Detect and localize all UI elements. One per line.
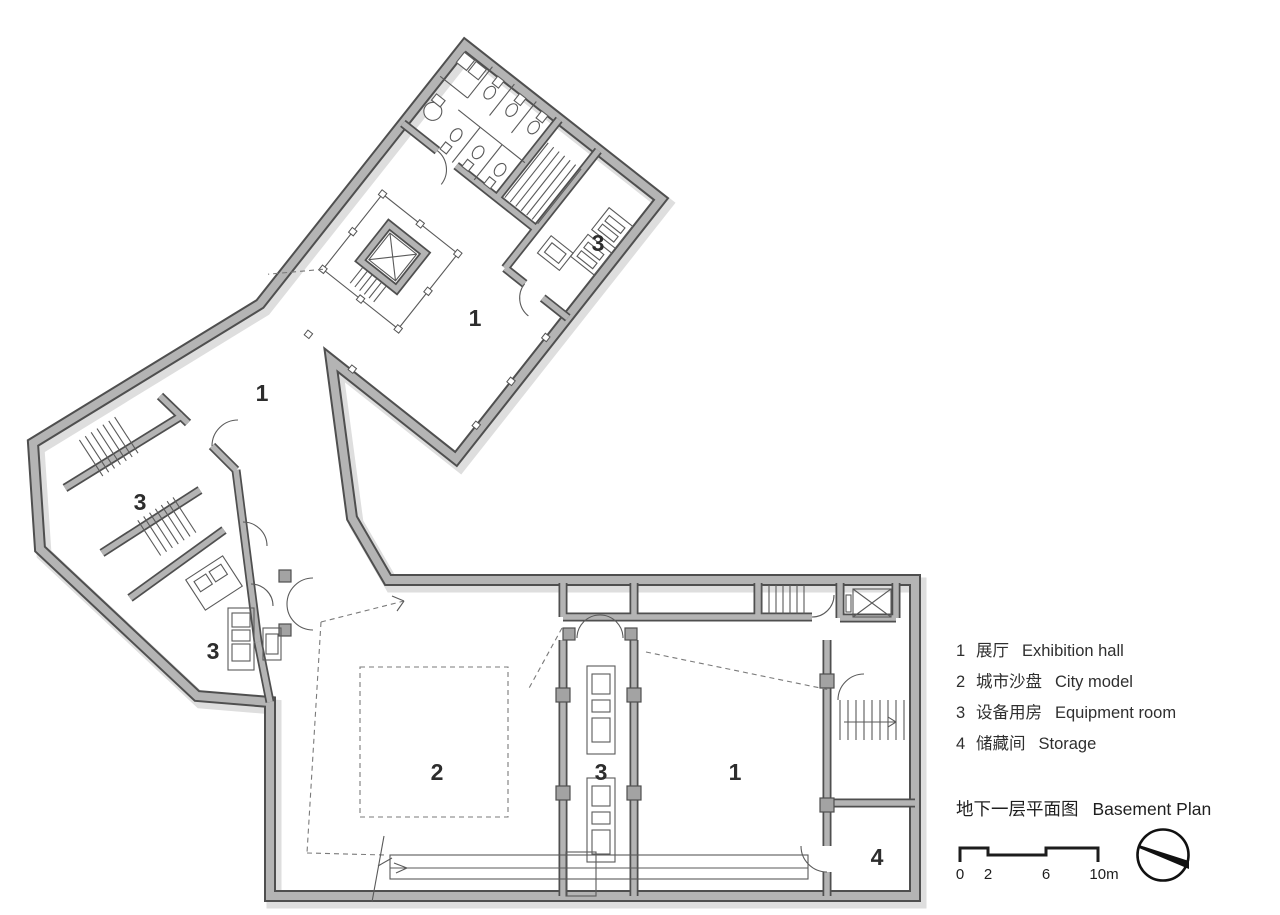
room-number-label: 3 <box>595 759 608 785</box>
drawing-title: 地下一层平面图Basement Plan <box>956 796 1211 821</box>
right-stair <box>840 700 904 740</box>
legend-item-storage: 4 储藏间 Storage <box>956 730 1176 761</box>
room-number-label: 3 <box>207 638 220 664</box>
equipment-racks <box>566 666 615 896</box>
scale-label: 2 <box>984 866 992 883</box>
scale-bar: 0 2 6 10m <box>956 848 1119 883</box>
room-number-label: 1 <box>729 759 742 785</box>
room-number-label: 1 <box>469 305 482 331</box>
legend-number: 2 <box>956 673 976 692</box>
lower-block-details <box>263 578 904 902</box>
toilets <box>403 45 559 198</box>
room-number-label: 4 <box>871 844 884 870</box>
legend-en: Equipment room <box>1055 704 1176 723</box>
scale-label: 10m <box>1089 866 1118 883</box>
equipment-rack <box>228 608 254 670</box>
legend-number: 3 <box>956 704 976 723</box>
legend-item-city-model: 2 城市沙盘 City model <box>956 668 1176 699</box>
legend-zh: 展厅 <box>976 637 1009 661</box>
basement-plan-page: 131332314 0 2 6 10m 1 展厅 Exhibition hall… <box>0 0 1280 915</box>
console-equipment <box>186 556 243 610</box>
legend-en: Storage <box>1039 735 1097 754</box>
legend-item-equipment-room: 3 设备用房 Equipment room <box>956 699 1176 730</box>
legend-zh: 设备用房 <box>976 699 1042 723</box>
city-model-platform <box>360 667 508 817</box>
title-en: Basement Plan <box>1093 799 1212 819</box>
floor-plan-svg: 131332314 0 2 6 10m <box>0 0 1280 915</box>
building-footprint <box>33 45 919 901</box>
legend-en: Exhibition hall <box>1022 642 1124 661</box>
legend-number: 4 <box>956 735 976 754</box>
legend-en: City model <box>1055 673 1133 692</box>
elevator <box>846 589 891 617</box>
wall-pilasters <box>279 570 834 812</box>
room-number-label: 2 <box>431 759 444 785</box>
scale-label: 0 <box>956 866 964 883</box>
legend-number: 1 <box>956 642 976 661</box>
interior-walls <box>65 45 915 896</box>
room-number-label: 3 <box>592 230 605 256</box>
legend-item-exhibition-hall: 1 展厅 Exhibition hall <box>956 637 1176 668</box>
title-zh: 地下一层平面图 <box>956 799 1079 819</box>
legend-zh: 储藏间 <box>976 730 1026 754</box>
room-number-label: 1 <box>256 380 269 406</box>
north-arrow-icon <box>1138 830 1190 881</box>
legend-zh: 城市沙盘 <box>976 668 1042 692</box>
room-number-label: 3 <box>134 489 147 515</box>
scale-label: 6 <box>1042 866 1050 883</box>
legend: 1 展厅 Exhibition hall 2 城市沙盘 City model 3… <box>956 637 1176 761</box>
